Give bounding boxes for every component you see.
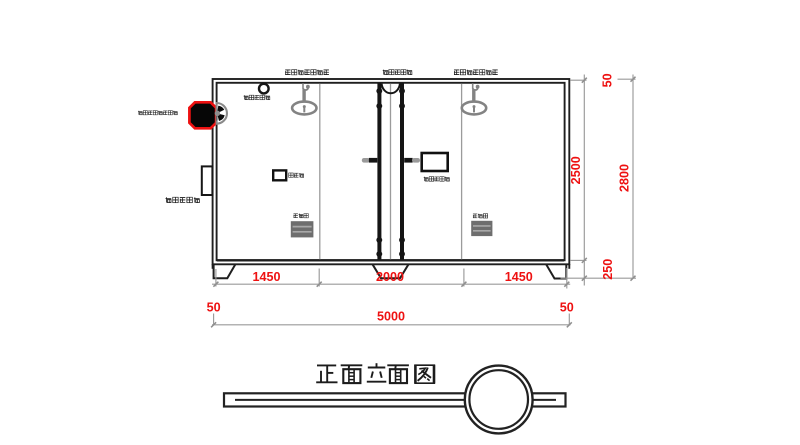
svg-text:250: 250	[601, 259, 615, 280]
svg-text:2500: 2500	[569, 156, 583, 184]
svg-text:2800: 2800	[617, 164, 631, 192]
svg-text:50: 50	[207, 300, 221, 314]
svg-text:50: 50	[601, 73, 615, 87]
svg-text:1450: 1450	[505, 270, 533, 284]
svg-text:1450: 1450	[252, 270, 280, 284]
svg-text:5000: 5000	[377, 309, 405, 323]
svg-text:2000: 2000	[376, 270, 404, 284]
svg-text:50: 50	[560, 300, 574, 314]
